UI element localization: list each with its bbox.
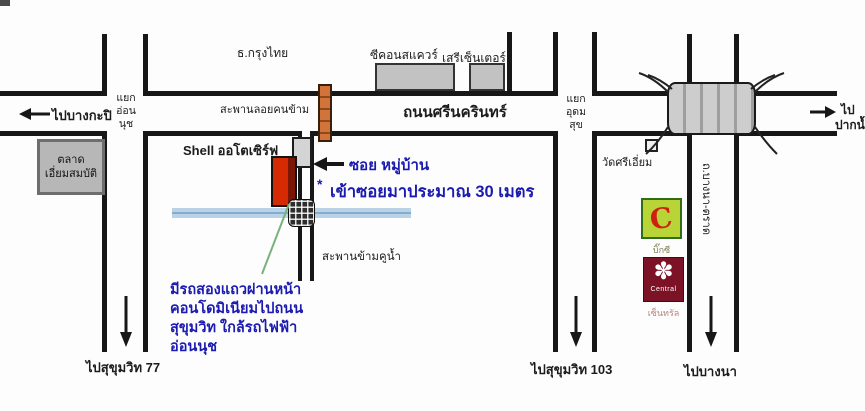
label-to-paknam-line2: ปากน้ำ [835, 116, 865, 135]
central-caption: เซ็นทรัล [643, 306, 684, 320]
label-soi-note: เข้าซอยมาประมาณ 30 เมตร [330, 179, 534, 205]
label-srinakarin-road: ถนนศรีนครินทร์ [403, 100, 507, 124]
songthaew-note: มีรถสองแถวผ่านหน้า คอนโดมิเนียมไปถนน สุข… [170, 281, 303, 357]
pointer-line [262, 204, 289, 274]
label-seacon-square: ซีคอนสแควร์ [370, 46, 438, 65]
map-canvas: ตลาด เอี่ยมสมบัติ C บิ๊กซี ✽ Central เซ็… [0, 0, 865, 411]
label-to-bangna: ไปบางนา [684, 361, 737, 382]
label-wat-sri-iam: วัดศรีเอี่ยม [602, 153, 652, 171]
label-seri-center: เสรีเซ็นเตอร์ [442, 49, 506, 68]
label-to-sukhumvit-103: ไปสุขุมวิท 103 [531, 359, 612, 380]
label-to-bangkapi: ไปบางกะปิ [52, 105, 112, 126]
big-c-caption: บิ๊กซี [641, 243, 682, 257]
soi-note-asterisk: * [317, 176, 322, 192]
flyover-arcs [639, 73, 784, 154]
label-canal-bridge: สะพานข้ามคูน้ำ [322, 248, 401, 266]
label-shell-station: Shell ออโตเซิร์ฟ [183, 140, 278, 161]
label-bangna-trat-road: ถ.บางนา-ตราด [698, 163, 716, 235]
label-soi: ซอย หมู่บ้าน [349, 153, 429, 177]
label-to-sukhumvit-77: ไปสุขุมวิท 77 [86, 357, 160, 378]
label-pedestrian-overpass: สะพานลอยคนข้าม [220, 100, 309, 118]
label-on-nut-intersection: แยก อ่อน นุช [116, 92, 136, 131]
corner-artifact [0, 0, 10, 6]
label-udom-suk-intersection: แยก อุดม สุข [566, 93, 586, 132]
label-krungthai-bank: ธ.กรุงไทย [237, 44, 288, 63]
